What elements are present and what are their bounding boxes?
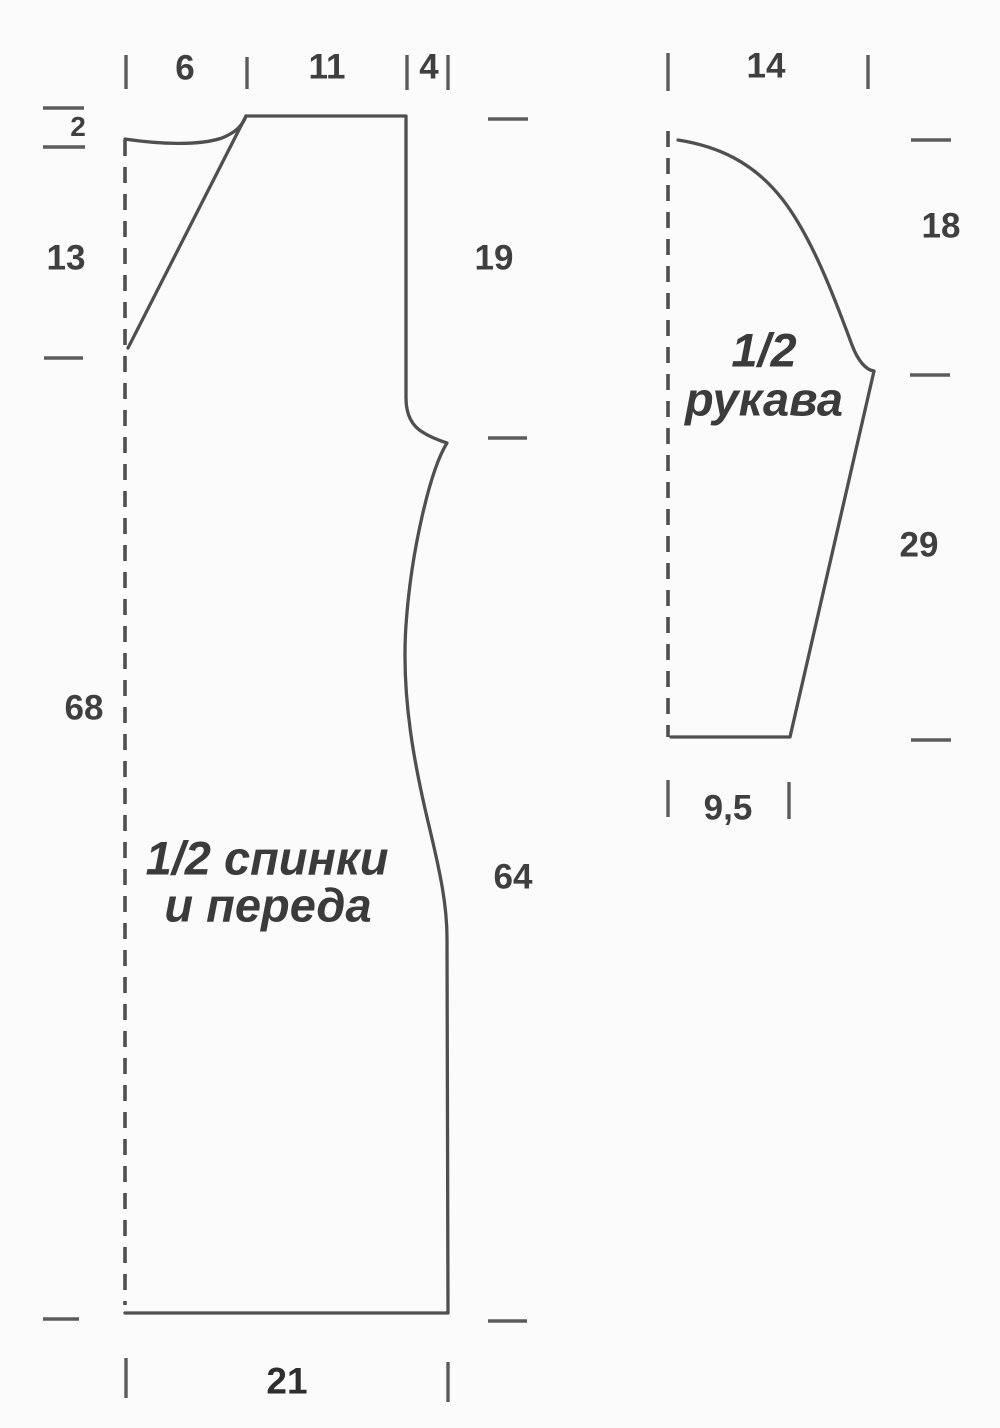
sleeve-top-width-label: 14: [747, 49, 786, 84]
body-outline-path: [125, 116, 448, 1313]
body-armhole-inset-label: 4: [419, 50, 438, 85]
pattern-drawing: [0, 0, 1000, 1428]
body-neck-width-label: 6: [175, 51, 194, 86]
sleeve-piece-name-line1: 1/2: [731, 327, 796, 374]
body-fold-length-label: 68: [65, 691, 104, 726]
body-neck-depth-label: 2: [70, 113, 86, 141]
body-lower-side-label: 64: [494, 860, 533, 895]
sleeve-outline-path: [671, 140, 874, 737]
body-piece-name-line1: 1/2 спинки: [146, 835, 389, 882]
sleeve-piece-name-line2: рукава: [685, 376, 843, 423]
body-raglan-depth-label: 13: [47, 241, 86, 276]
body-raglan-line: [128, 116, 246, 348]
sleeve-cap-height-label: 18: [922, 209, 961, 244]
body-hem-width-label: 21: [266, 1363, 307, 1400]
knitting-pattern-schematic: 6 11 4 2 13 68 19 64 21 14 18 29 9,5 1/2…: [0, 0, 1000, 1428]
body-piece-name-line2: и переда: [164, 882, 371, 929]
sleeve-seam-length-label: 29: [900, 528, 939, 563]
body-upper-side-label: 19: [475, 241, 514, 276]
sleeve-cuff-width-label: 9,5: [704, 791, 753, 826]
body-shoulder-width-label: 11: [309, 50, 346, 85]
